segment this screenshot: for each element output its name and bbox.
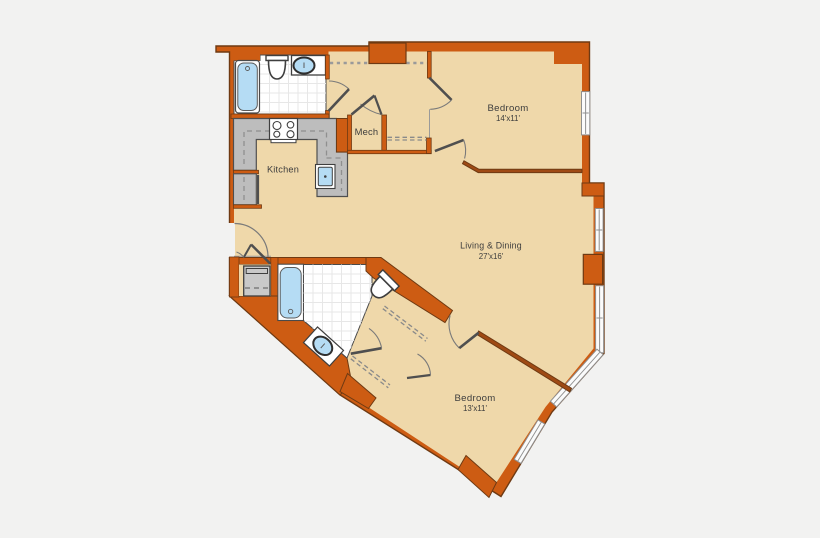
svg-text:Living & Dining: Living & Dining — [460, 241, 522, 251]
svg-text:27'x16': 27'x16' — [479, 252, 504, 261]
svg-text:Bedroom: Bedroom — [487, 103, 528, 114]
svg-text:14'x11': 14'x11' — [496, 114, 520, 123]
svg-text:Mech: Mech — [355, 126, 379, 137]
svg-text:Kitchen: Kitchen — [267, 165, 299, 175]
svg-text:Bedroom: Bedroom — [454, 393, 495, 404]
svg-text:13'x11': 13'x11' — [463, 404, 487, 413]
